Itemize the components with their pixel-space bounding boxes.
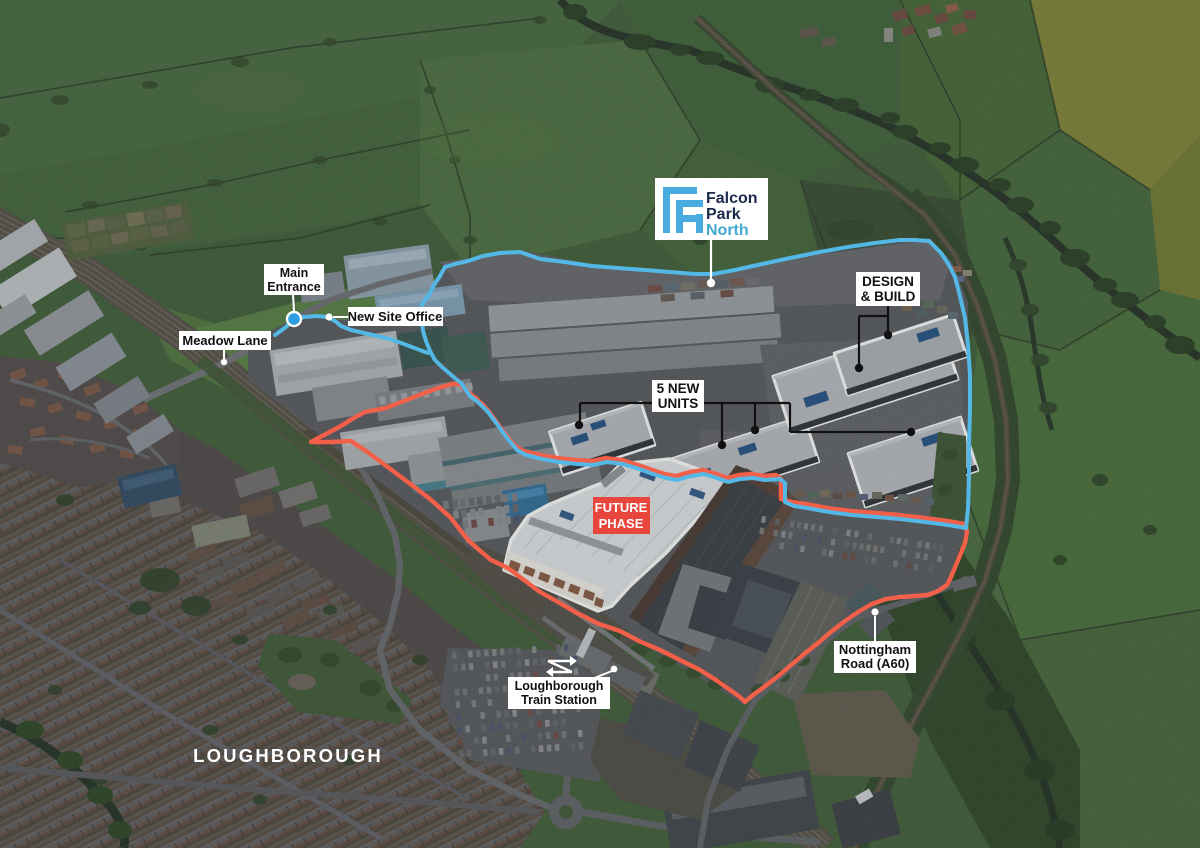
svg-text:Nottingham: Nottingham (839, 642, 911, 657)
svg-text:Park: Park (706, 206, 741, 223)
svg-text:DESIGN: DESIGN (862, 274, 914, 289)
svg-text:New Site Office: New Site Office (348, 309, 443, 324)
svg-text:North: North (706, 222, 749, 239)
svg-text:5 NEW: 5 NEW (657, 381, 700, 396)
svg-text:LOUGHBOROUGH: LOUGHBOROUGH (193, 745, 383, 766)
svg-text:& BUILD: & BUILD (861, 289, 916, 304)
svg-text:Main: Main (280, 266, 308, 280)
svg-text:Meadow Lane: Meadow Lane (182, 333, 267, 348)
svg-text:PHASE: PHASE (599, 516, 644, 531)
svg-text:Falcon: Falcon (706, 190, 758, 207)
svg-text:UNITS: UNITS (658, 396, 699, 411)
svg-text:Entrance: Entrance (267, 280, 321, 294)
svg-text:Loughborough: Loughborough (515, 679, 604, 693)
svg-text:FUTURE: FUTURE (595, 500, 648, 515)
svg-text:Road (A60): Road (A60) (841, 656, 910, 671)
svg-text:Train Station: Train Station (521, 693, 597, 707)
